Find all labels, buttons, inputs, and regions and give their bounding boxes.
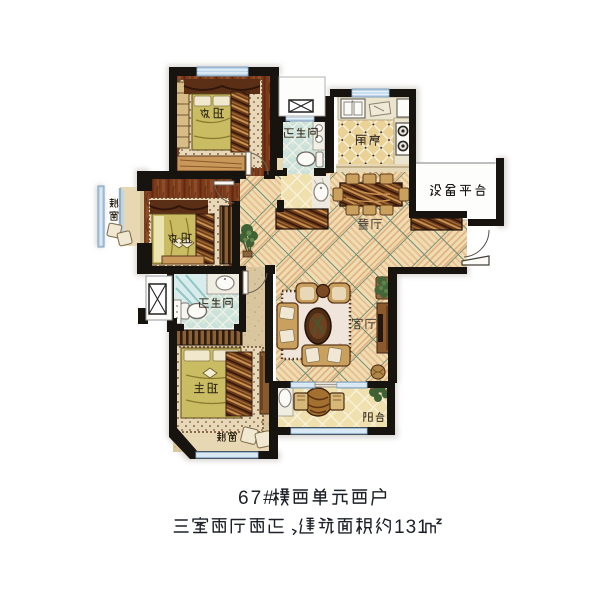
svg-text:67#: 67#: [238, 488, 276, 509]
svg-text:131: 131: [394, 517, 429, 538]
